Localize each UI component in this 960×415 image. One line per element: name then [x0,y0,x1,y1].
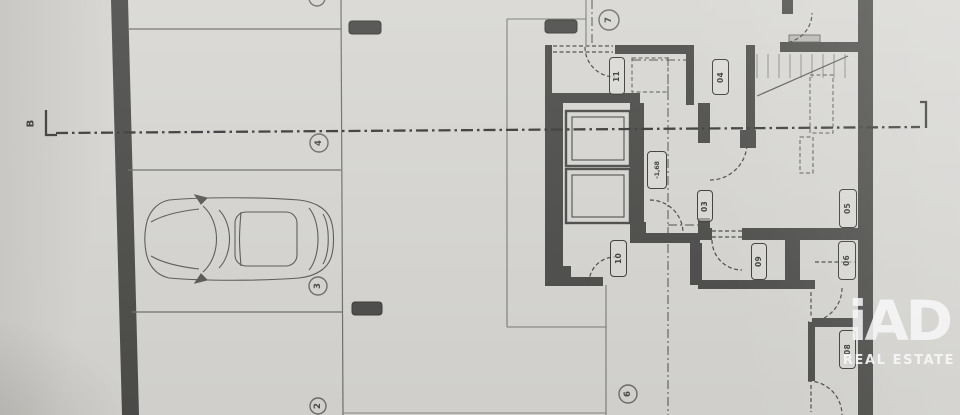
section-mark-right [920,102,926,128]
number-circles [309,0,637,414]
column [349,21,381,34]
stall-circle-2 [310,398,326,414]
building-core-walls [545,0,873,415]
columns [349,20,577,315]
section-mark-left [46,110,57,135]
stall-circle-cut [309,0,325,6]
side-mirror [195,274,207,283]
building-right-wall [858,0,873,415]
stall-divider-lines [128,0,343,415]
parking-left-wall [111,0,139,415]
section-line-b [46,102,926,135]
column [545,20,577,33]
stair-lower-flight-dashed [810,75,833,133]
car-top-view [145,195,334,283]
column [352,302,382,315]
axis-circle-7 [599,10,619,30]
floor-plan-drawing [0,0,960,415]
elevator-shafts [566,111,630,223]
dashed-fixtures [632,58,813,173]
stall-circle-3 [309,277,327,295]
side-mirror [195,195,207,204]
axis-circle-6 [619,385,637,403]
floor-plan-photo: B 2 3 4 7 6 11 04 03 05 06 09 10 08 -1,6… [0,0,960,415]
stall-circle-4 [310,134,328,152]
parking-area [111,0,606,415]
entry-door-leaf [789,35,820,42]
